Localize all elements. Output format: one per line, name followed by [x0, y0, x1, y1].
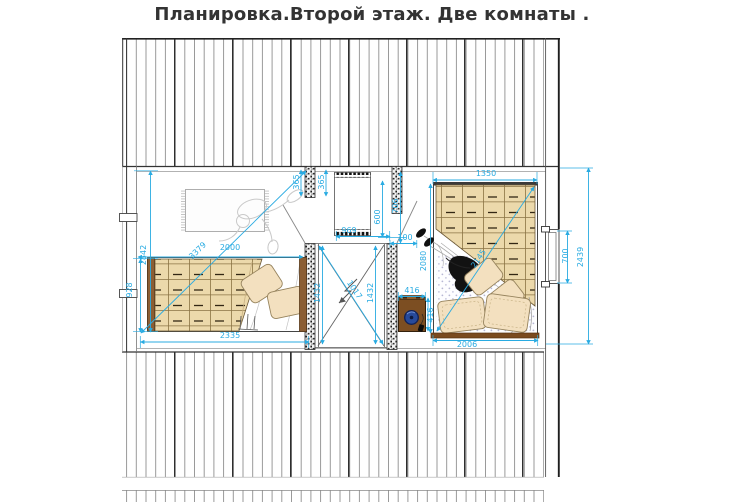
dim-right-room-bed-bottom: 2006 [457, 341, 477, 349]
dim-stairwell-opening-right: 1432 [367, 283, 375, 303]
roof-planks-bottom-strip [122, 490, 544, 502]
dim-left-room-width-bottom: 2335 [220, 332, 240, 340]
roof-planks-top [122, 38, 560, 166]
dim-right-room-bed-length: 2080 [420, 251, 428, 271]
nightstand [399, 296, 426, 333]
rug [181, 190, 269, 232]
dim-stairwell-wardrobe-width: 969 [341, 227, 356, 235]
bed-left [148, 258, 308, 332]
dim-stairwell-wall-height: 706 [392, 198, 400, 213]
dim-right-room-nightstand-width: 416 [404, 287, 419, 295]
dim-left-room-height: 2842 [140, 245, 148, 265]
dim-stairwell-post-right: 365 [318, 174, 326, 189]
roof-planks-bottom [122, 353, 544, 478]
dim-right-room-nightstand-depth: 416 [427, 307, 435, 322]
lamp [405, 311, 419, 325]
dim-right-room-window-width: 700 [562, 248, 570, 263]
dim-stairwell-opening-left: 1432 [314, 283, 322, 303]
dim-stairwell-post-width: 100 [397, 234, 412, 242]
floor-plan-canvas: Планировка.Второй этаж. Две комнаты . [0, 0, 733, 502]
dim-left-room-bed-width: 928 [126, 282, 134, 297]
dim-right-room-bed-width: 1350 [476, 170, 496, 178]
floor-plan-drawing [0, 0, 733, 502]
window-right [542, 227, 562, 288]
dim-right-room-wall-length: 2439 [577, 247, 585, 267]
door-left-room [283, 205, 305, 243]
dim-left-room-width-top: 2000 [220, 244, 240, 252]
dim-stairwell-post-left: 365 [293, 174, 301, 189]
dim-stairwell-closet-height: 600 [374, 209, 382, 224]
